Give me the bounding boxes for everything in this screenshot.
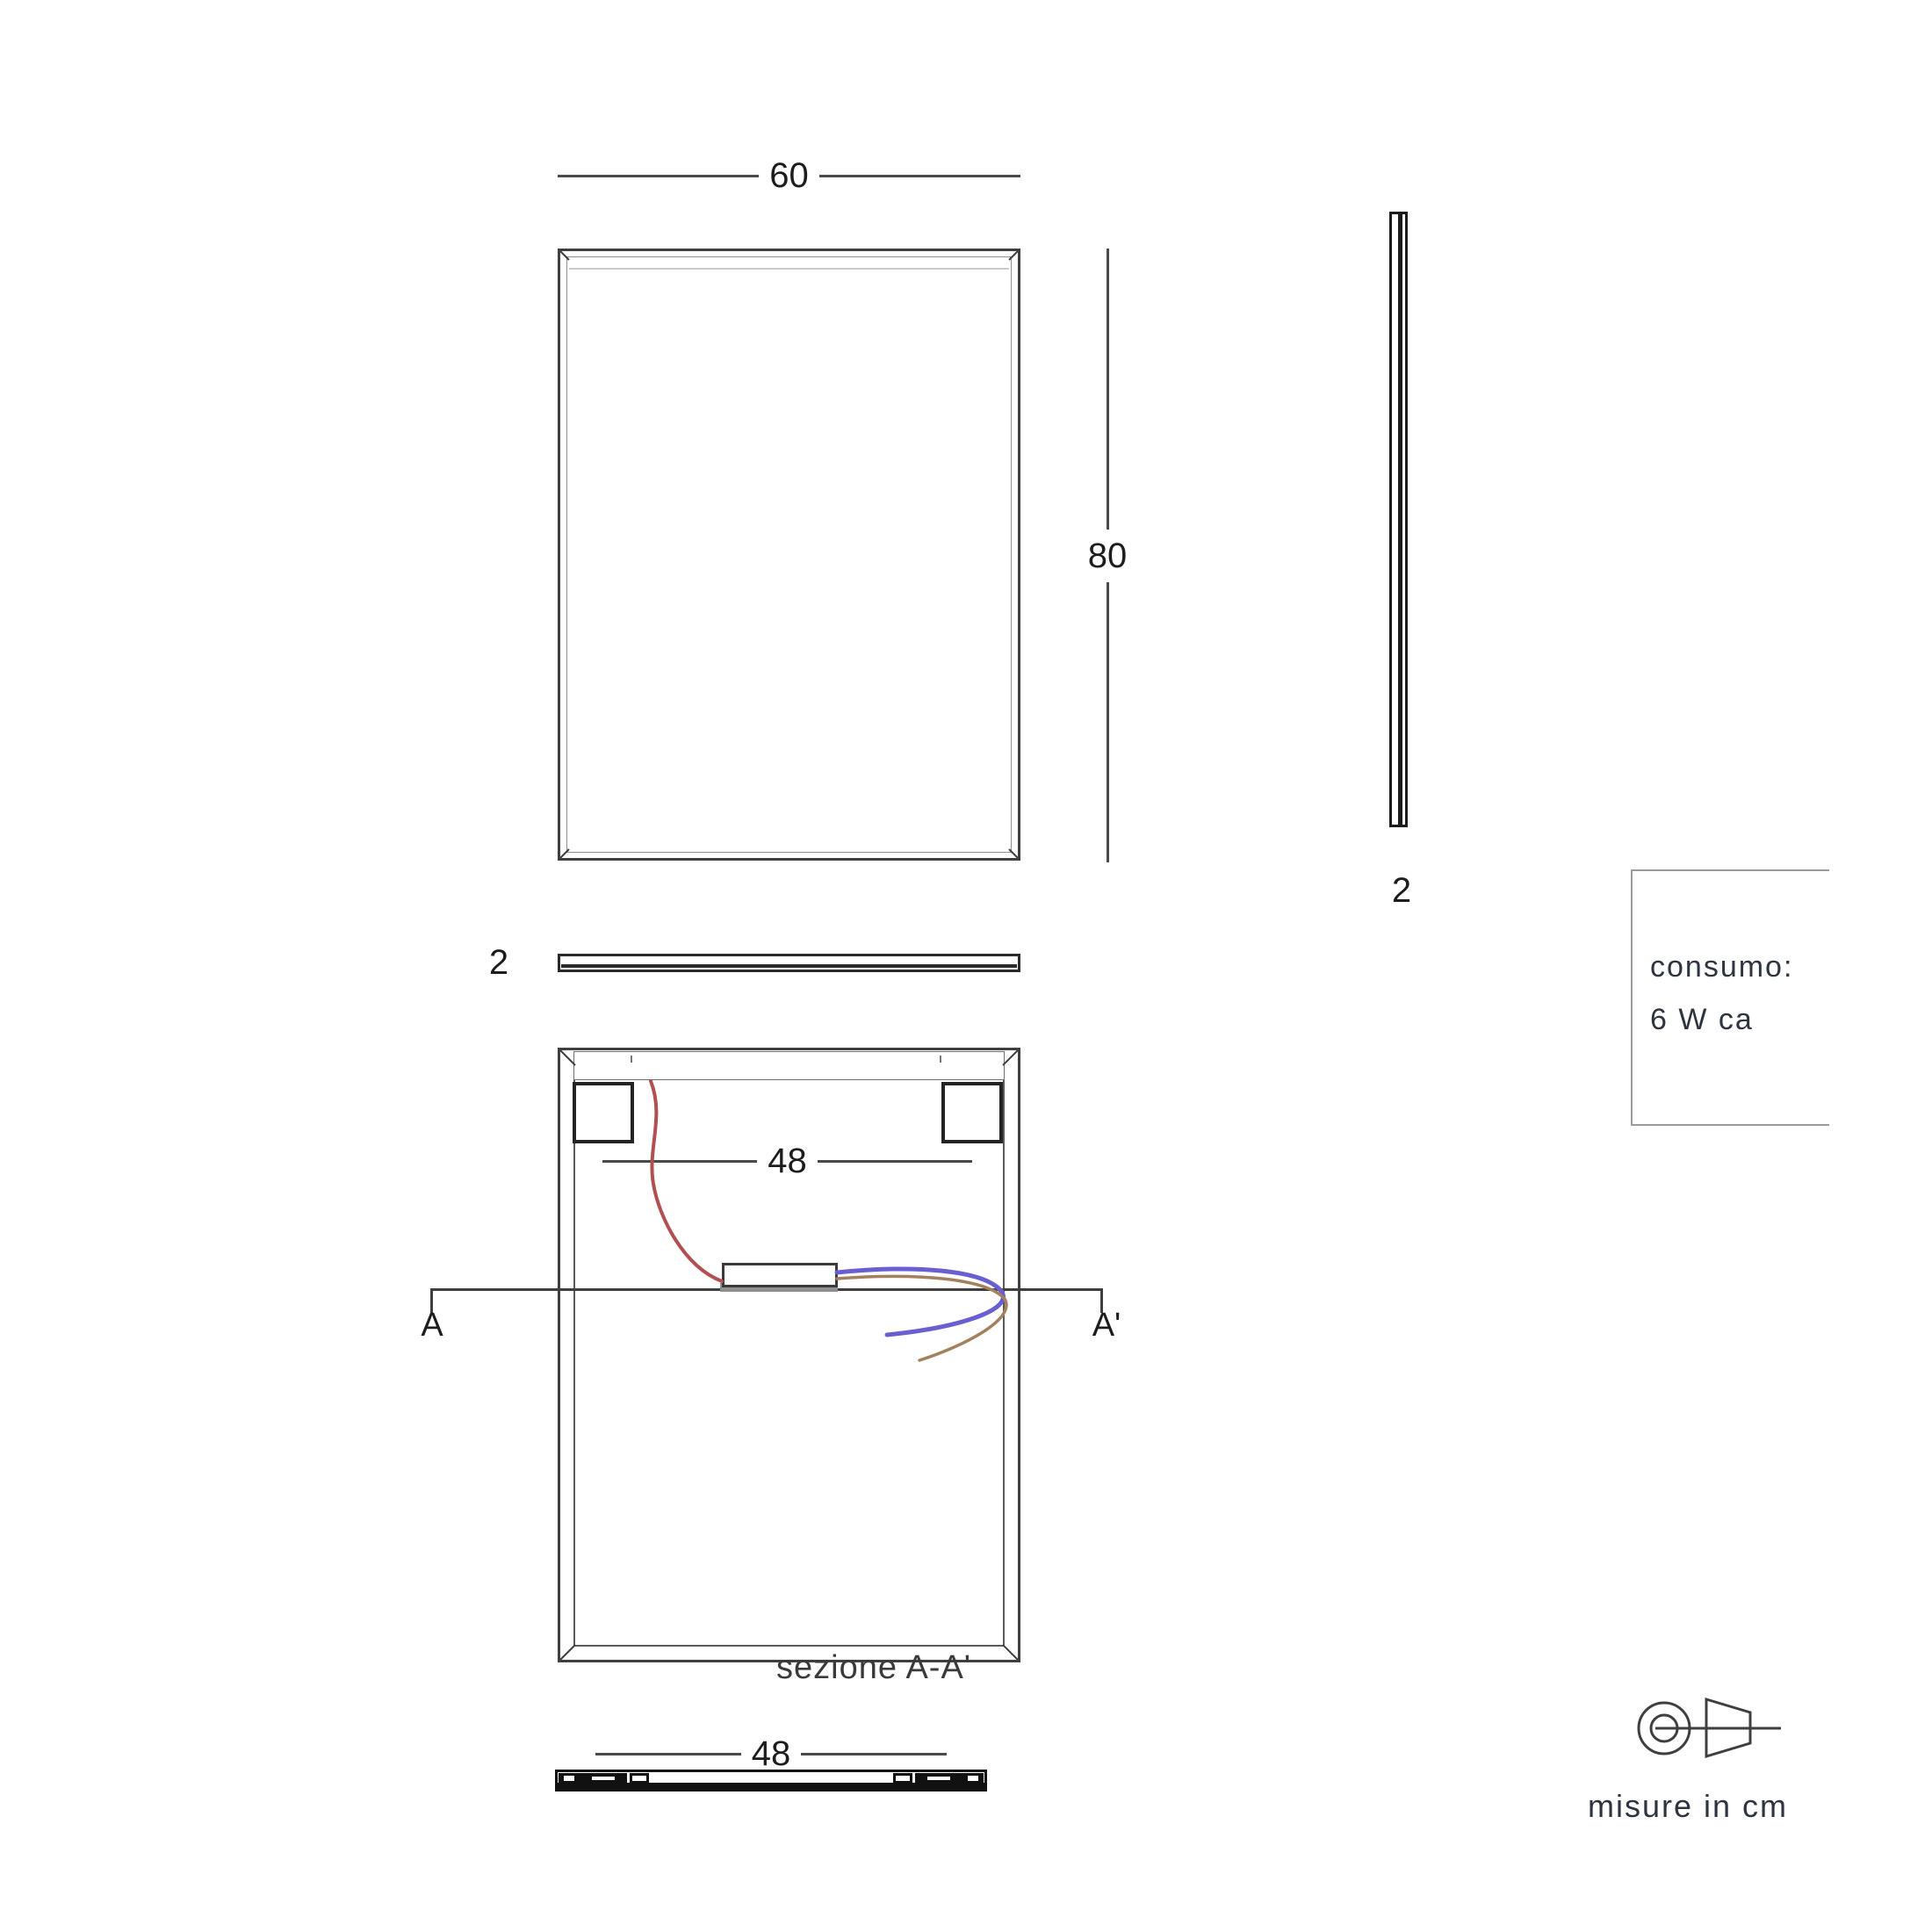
consumption-value: 6 W ca: [1650, 1003, 1754, 1037]
side-view-bar: [1389, 212, 1408, 827]
dimension-line: [819, 175, 1020, 177]
dimension-front-width: 60: [558, 157, 1020, 194]
dimension-line: [818, 1160, 972, 1163]
mounting-bracket-left: [573, 1082, 634, 1143]
top-view-glass-stripe: [561, 964, 1017, 968]
first-angle-projection-icon: [1639, 1699, 1781, 1756]
section-frame-end-left: [559, 1773, 627, 1784]
dimension-strip-width: 48: [602, 1143, 972, 1179]
section-notch: [968, 1776, 978, 1781]
dimension-line: [1107, 249, 1109, 530]
consumption-info-box: consumo: 6 W ca: [1631, 869, 1829, 1126]
section-caption: sezione A-A': [776, 1651, 971, 1684]
dimension-line: [595, 1753, 741, 1755]
strip-tick-mark: [940, 1056, 941, 1063]
section-notch: [564, 1776, 574, 1781]
dimension-label-80: 80: [1088, 530, 1128, 582]
section-led-module: [630, 1773, 649, 1784]
mounting-bracket-right: [941, 1082, 1003, 1143]
strip-tick-mark: [631, 1056, 632, 1063]
dimension-line: [558, 175, 759, 177]
led-driver-box: [722, 1263, 838, 1287]
dimension-section-width: 48: [595, 1735, 947, 1772]
section-label-a: A: [415, 1307, 450, 1344]
dimension-label-48-bottom: 48: [741, 1736, 802, 1771]
dimension-label-48: 48: [757, 1143, 818, 1179]
front-view-inner-frame: [566, 256, 1012, 853]
technical-drawing-canvas: 60 80 2 2 48 A A' sezione A-A': [0, 0, 1932, 1932]
section-frame-end-right: [915, 1773, 984, 1784]
units-note: misure in cm: [1588, 1788, 1788, 1825]
front-view-light-strip-line: [569, 268, 1009, 270]
section-profile-bar: [555, 1770, 987, 1791]
dimension-front-height: 80: [1087, 249, 1128, 862]
dimension-line: [801, 1753, 947, 1755]
section-notch: [927, 1777, 950, 1780]
side-thickness-label: 2: [1379, 871, 1424, 910]
side-view-glass-stripe: [1398, 214, 1402, 825]
dimension-line: [1107, 582, 1109, 863]
top-view-bar: [558, 954, 1020, 972]
section-label-a-prime: A': [1082, 1307, 1131, 1344]
section-notch: [592, 1777, 615, 1780]
section-led-module: [893, 1773, 912, 1784]
top-thickness-label: 2: [478, 943, 520, 982]
dimension-label-60: 60: [759, 158, 819, 193]
consumption-title: consumo:: [1650, 950, 1793, 984]
dimension-line: [602, 1160, 757, 1163]
section-glass-strip: [558, 1783, 984, 1789]
